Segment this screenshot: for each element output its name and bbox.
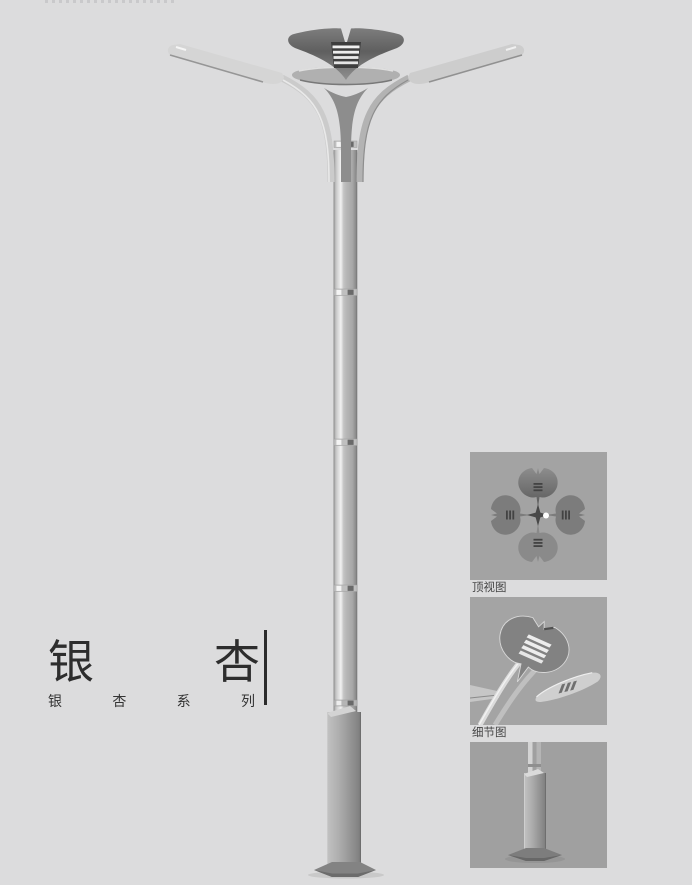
product-title: 银 杏 xyxy=(48,639,260,685)
catalog-page: 银 杏 银 杏 系 列 xyxy=(0,0,692,885)
left-lamp-blade xyxy=(168,44,284,84)
right-lamp-blade xyxy=(408,44,524,84)
series-char-3: 系 xyxy=(177,691,191,711)
detail-view-panel xyxy=(470,597,607,725)
title-char-1: 银 xyxy=(48,639,94,685)
right-arm xyxy=(360,78,409,182)
base-view-label xyxy=(470,868,607,885)
series-char-1: 银 xyxy=(48,691,62,711)
title-divider-bar xyxy=(264,630,267,705)
base-view-panel xyxy=(470,742,607,868)
series-char-2: 杏 xyxy=(112,691,126,711)
title-char-2: 杏 xyxy=(214,639,260,685)
detail-view-label: 细节图 xyxy=(470,725,607,742)
anchor-plate xyxy=(308,862,384,879)
left-arm xyxy=(282,78,331,182)
series-subtitle: 银 杏 系 列 xyxy=(48,691,255,711)
base-column-small xyxy=(524,769,546,856)
top-view-panel xyxy=(470,452,607,580)
series-char-4: 列 xyxy=(241,691,255,711)
detail-panels: 顶视图 xyxy=(470,452,607,885)
top-view-label: 顶视图 xyxy=(470,580,607,597)
twin-tube-pole xyxy=(334,150,358,713)
square-base-column xyxy=(327,706,361,865)
